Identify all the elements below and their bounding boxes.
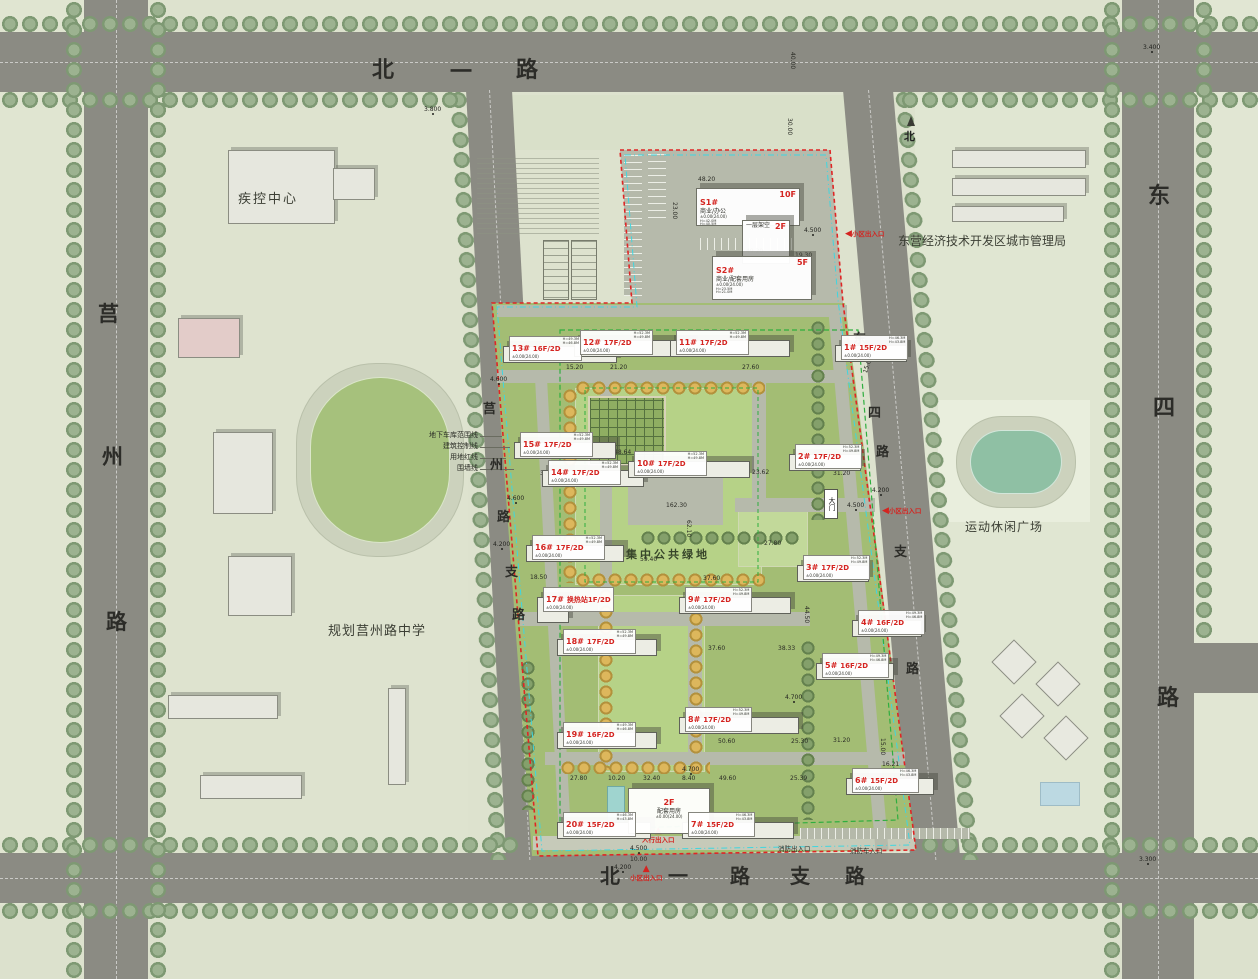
building-elevation-note: ±0.00(24.00) (583, 349, 650, 353)
dimension-label: 8.40 (682, 775, 695, 782)
dimension-label: 31.20 (833, 470, 850, 477)
entrance-arrow-icon: ◀ (882, 506, 889, 516)
road-name-south_branch: 支 (790, 860, 810, 889)
spot-elevation: 3.400 (1143, 44, 1160, 53)
building-number: 8# (688, 715, 700, 724)
building-label-card: 11#17F/2DH=52.3MH=49.8M±0.00(24.00) (676, 330, 749, 355)
building-heights: H=49.3MH=46.8M (870, 655, 886, 662)
building-number: 12# (583, 338, 601, 347)
dimension-label: 25.39 (790, 775, 807, 782)
road-name-south_branch: 路 (845, 860, 865, 889)
building-number: 7# (691, 820, 703, 829)
spot-elevation: 4.200 (872, 487, 889, 496)
building-label-card: 16#17F/2DH=52.3MH=49.8M±0.00(24.00) (532, 535, 605, 560)
building-label-card: 12#17F/2DH=52.3MH=49.8M±0.00(24.00) (580, 330, 653, 355)
building-floors: 15F/2D (706, 821, 734, 829)
dimension-label: 23.62 (752, 469, 769, 476)
dimension-label: 27.80 (570, 775, 587, 782)
building-number: 1# (844, 343, 856, 352)
dimension-label: 48.64 (614, 449, 631, 456)
building-floors: 16F/2D (587, 731, 615, 739)
building-heights: H=52.3MH=49.8M (851, 557, 867, 564)
commercial-floors: 10F (779, 191, 796, 200)
building-heights: H=52.3MH=49.8M (843, 446, 859, 453)
building-floors: 16F/2D (876, 619, 904, 627)
building-elevation-note: ±0.00(24.00) (844, 354, 905, 358)
road-name-west_branch: 路 (512, 604, 525, 623)
entrance-label: 消防出入口 (778, 845, 811, 853)
building-heights: H=52.3MH=49.8M (602, 462, 618, 469)
building-floors: 17F/2D (703, 716, 731, 724)
road-name-east_branch: 路 (906, 658, 919, 677)
building-floors: 17F/2D (572, 469, 600, 477)
dimension-label: 49.60 (719, 775, 736, 782)
building-elevation-note: ±0.00(24.00) (679, 349, 746, 353)
building-label-card: 19#16F/2DH=49.3MH=46.8M±0.00(24.00) (563, 722, 636, 747)
building-elevation-note: ±0.00(24.00) (566, 648, 633, 652)
building-label-card: 2#17F/2DH=52.3MH=49.8M±0.00(24.00) (795, 444, 862, 469)
road-name-north: 一 (450, 54, 472, 86)
building-elevation-note: ±0.00(24.00) (546, 606, 611, 610)
building-number: 18# (566, 637, 584, 646)
spot-elevation: 4.600 (507, 495, 524, 504)
entrance-marker: 消防车入口 (850, 845, 883, 855)
dimension-label: 18.50 (530, 574, 547, 581)
site-plan-map: 疾控中心 东营经济技术开发区城市管理局 规划莒州路中学 运动休闲广场 集中公共绿… (0, 0, 1258, 979)
dimension-label: 37.60 (708, 645, 725, 652)
building-heights: H=52.3MH=49.8M (730, 332, 746, 339)
dimension-label: 23.00 (671, 202, 678, 219)
commercial-building: S2#5F商业/配套用房±0.00(24.00)H=23.5MH=21.0M (712, 256, 812, 300)
building-elevation-note: ±0.00(24.00) (512, 355, 579, 359)
commercial-heights: H=42.0MH=40.5M (700, 220, 716, 228)
building-label-card: 17#换热站1F/2D±0.00(24.00) (543, 587, 614, 612)
road-name-west: 路 (106, 606, 127, 636)
building-label-card: 20#15F/2DH=46.3MH=43.8M±0.00(24.00) (563, 812, 636, 837)
commercial-number: S2# (716, 266, 734, 275)
road-name-south_branch: 一 (668, 860, 688, 889)
building-floors: 17F/2D (813, 453, 841, 461)
building-floors: 17F/2D (703, 596, 731, 604)
road-name-east: 东 (1148, 178, 1170, 210)
commercial-number: S1# (700, 198, 718, 207)
building-heights: H=52.3MH=49.8M (733, 589, 749, 596)
building-elevation-note: ±0.00(24.00) (523, 451, 590, 455)
road-name-west_branch: 支 (505, 561, 518, 580)
road-name-west_branch: 州 (490, 454, 503, 473)
road-name-south_branch: 路 (730, 860, 750, 889)
building-elevation-note: ±0.00(24.00) (825, 672, 886, 676)
entrance-label: 小区出入口 (630, 874, 663, 882)
building-floors: 17F/2D (700, 339, 728, 347)
dimension-label: 27.80 (764, 540, 781, 547)
building-elevation-note: ±0.00(24.00) (806, 574, 867, 578)
building-heights: H=49.3MH=46.8M (617, 724, 633, 731)
building-elevation-note: ±0.00(24.00) (566, 831, 633, 835)
road-name-east_branch: 四 (868, 402, 881, 421)
building-number: 5# (825, 661, 837, 670)
road-name-north: 北 (372, 52, 394, 84)
building-label-card: 18#17F/2DH=52.3MH=49.8M±0.00(24.00) (563, 629, 636, 654)
road-name-west: 州 (102, 441, 123, 471)
dimension-label: 21.20 (610, 364, 627, 371)
road-name-east: 四 (1153, 390, 1175, 422)
building-elevation-note: ±0.00(24.00) (688, 606, 749, 610)
spot-elevation: 4.500 (630, 845, 647, 854)
markers-layer: 13#16F/2DH=49.3MH=46.8M±0.00(24.00)12#17… (0, 0, 1258, 979)
building-heights: H=52.3MH=49.8M (688, 453, 704, 460)
building-elevation-note: ±0.00(24.00) (566, 741, 633, 745)
entrance-label: 小区出入口 (852, 230, 885, 238)
entrance-marker: ▲小区出入口 (630, 866, 663, 882)
building-label-card: 10#17F/2DH=52.3MH=49.8M±0.00(24.00) (634, 451, 707, 476)
road-name-south_branch: 北 (600, 860, 620, 889)
building-heights: H=52.3MH=49.8M (617, 631, 633, 638)
building-elevation-note: ±0.00(24.00) (691, 831, 752, 835)
dimension-label: 50.60 (718, 738, 735, 745)
spot-elevation: 4.500 (804, 227, 821, 236)
building-floors: 17F/2D (821, 564, 849, 572)
building-heights: H=46.3MH=43.8M (900, 770, 916, 777)
road-name-east: 路 (1157, 680, 1179, 712)
road-name-east_branch: 支 (894, 541, 907, 560)
building-heights: H=52.3MH=49.8M (733, 709, 749, 716)
dimension-label: 30.00 (786, 118, 793, 135)
building-floors: 换热站1F/2D (567, 596, 611, 604)
entrance-triangle-icon: ▲ (630, 866, 663, 872)
service-floors: 2F (663, 798, 674, 807)
road-name-west: 莒 (98, 298, 119, 328)
building-floors: 17F/2D (658, 460, 686, 468)
entrance-arrow-icon: ◀ (845, 229, 852, 239)
dimension-label: 10.00 (630, 856, 647, 863)
building-heights: H=49.3MH=46.8M (906, 612, 922, 619)
dimension-label: 44.50 (803, 606, 810, 623)
building-number: 2# (798, 452, 810, 461)
building-floors: 16F/2D (533, 345, 561, 353)
entrance-label: 小区出入口 (889, 507, 922, 515)
building-label-card: 15#17F/2DH=52.3MH=49.8M±0.00(24.00) (520, 432, 593, 457)
building-label-card: 13#16F/2DH=49.3MH=46.8M±0.00(24.00) (509, 336, 582, 361)
dimension-label: 25.30 (791, 738, 808, 745)
building-number: 16# (535, 543, 553, 552)
building-floors: 17F/2D (587, 638, 615, 646)
building-elevation-note: ±0.00(24.00) (798, 463, 859, 467)
entrance-marker: ◀小区出入口 (882, 505, 921, 515)
building-heights: H=52.3MH=49.8M (634, 332, 650, 339)
building-number: 13# (512, 344, 530, 353)
building-heights: H=46.3MH=43.8M (736, 814, 752, 821)
spot-elevation: 4.700 (785, 694, 802, 703)
building-number: 11# (679, 338, 697, 347)
dimension-label: 62.10 (685, 520, 692, 537)
commercial-floors: 2F (775, 223, 786, 232)
commercial-floors: 5F (797, 259, 808, 268)
spot-elevation: 4.500 (847, 502, 864, 511)
dimension-label: 48.20 (698, 176, 715, 183)
spot-elevation: 3.300 (1139, 856, 1156, 865)
entrance-marker: 消防出入口 (778, 843, 811, 853)
entrance-marker: ◀小区出入口 (845, 228, 884, 238)
dimension-label: 10.20 (608, 775, 625, 782)
building-heights: H=52.3MH=49.8M (574, 434, 590, 441)
dimension-label: 16.21 (882, 761, 899, 768)
building-elevation-note: ±0.00(24.00) (861, 629, 922, 633)
building-number: 20# (566, 820, 584, 829)
building-floors: 17F/2D (556, 544, 584, 552)
dimension-label: 15.00 (879, 738, 886, 755)
building-elevation-note: ±0.00(24.00) (551, 479, 618, 483)
dimension-label: 38.33 (778, 645, 795, 652)
dimension-label: 162.30 (666, 502, 687, 509)
road-name-north: 路 (516, 52, 538, 84)
road-name-east_branch: 路 (876, 441, 889, 460)
dimension-label: 31.20 (833, 737, 850, 744)
building-heights: H=46.3MH=43.8M (889, 337, 905, 344)
dimension-label: 32.40 (643, 775, 660, 782)
building-label-card: 14#17F/2DH=52.3MH=49.8M±0.00(24.00) (548, 460, 621, 485)
road-name-west_branch: 路 (497, 506, 510, 525)
entrance-label: 消防车入口 (850, 847, 883, 855)
building-number: 19# (566, 730, 584, 739)
building-label-card: 3#17F/2DH=52.3MH=49.8M±0.00(24.00) (803, 555, 870, 580)
building-elevation-note: ±0.00(24.00) (535, 554, 602, 558)
spot-elevation: 4.600 (490, 376, 507, 385)
building-elevation-note: ±0.00(24.00) (688, 726, 749, 730)
building-number: 3# (806, 563, 818, 572)
spot-elevation: 3.800 (424, 106, 441, 115)
building-label-card: 9#17F/2DH=52.3MH=49.8M±0.00(24.00) (685, 587, 752, 612)
building-number: 14# (551, 468, 569, 477)
building-number: 15# (523, 440, 541, 449)
dimension-label: 15.20 (566, 364, 583, 371)
building-number: 17# (546, 595, 564, 604)
building-floors: 16F/2D (840, 662, 868, 670)
building-heights: H=46.3MH=43.8M (617, 814, 633, 821)
building-floors: 15F/2D (870, 777, 898, 785)
building-floors: 17F/2D (604, 339, 632, 347)
building-label-card: 6#15F/2DH=46.3MH=43.8M±0.00(24.00) (852, 768, 919, 793)
spot-elevation: 4.700 (682, 766, 699, 775)
building-number: 9# (688, 595, 700, 604)
building-label-card: 8#17F/2DH=52.3MH=49.8M±0.00(24.00) (685, 707, 752, 732)
building-heights: H=49.3MH=46.8M (563, 338, 579, 345)
building-label-card: 1#15F/2DH=46.3MH=43.8M±0.00(24.00) (841, 335, 908, 360)
road-name-west_branch: 莒 (483, 398, 496, 417)
spot-elevation: 4.200 (493, 541, 510, 550)
building-label-card: 7#15F/2DH=46.3MH=43.8M±0.00(24.00) (688, 812, 755, 837)
building-floors: 17F/2D (544, 441, 572, 449)
building-number: 6# (855, 776, 867, 785)
building-number: 4# (861, 618, 873, 627)
building-heights: H=52.3MH=49.8M (586, 537, 602, 544)
dimension-label: 59.40 (640, 556, 657, 563)
commercial-heights: H=23.5MH=21.0M (716, 288, 732, 296)
building-number: 10# (637, 459, 655, 468)
gate-label: 大门 (824, 489, 838, 519)
building-elevation-note: ±0.00(24.00) (637, 470, 704, 474)
dimension-label: 27.60 (742, 364, 759, 371)
dimension-label: 40.00 (789, 52, 796, 69)
building-elevation-note: ±0.00(24.00) (855, 787, 916, 791)
building-label-card: 4#16F/2DH=49.3MH=46.8M±0.00(24.00) (858, 610, 925, 635)
dimension-label: 37.60 (703, 575, 720, 582)
building-floors: 15F/2D (859, 344, 887, 352)
building-floors: 15F/2D (587, 821, 615, 829)
building-label-card: 5#16F/2DH=49.3MH=46.8M±0.00(24.00) (822, 653, 889, 678)
